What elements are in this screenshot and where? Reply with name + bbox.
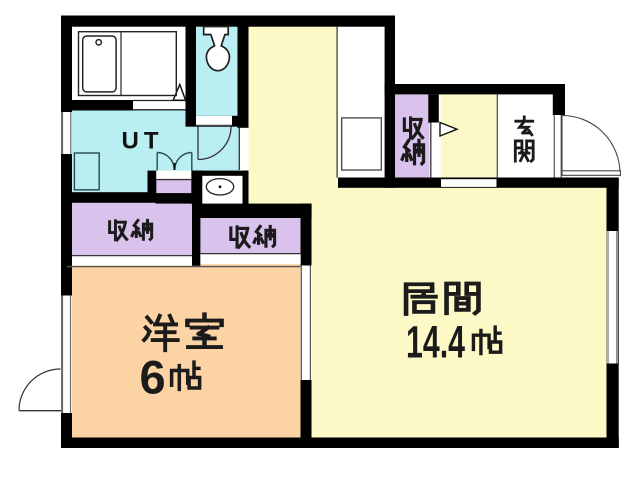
svg-text:6: 6 <box>140 351 166 404</box>
svg-text:14.4: 14.4 <box>406 317 465 368</box>
svg-text:UT: UT <box>122 128 164 155</box>
